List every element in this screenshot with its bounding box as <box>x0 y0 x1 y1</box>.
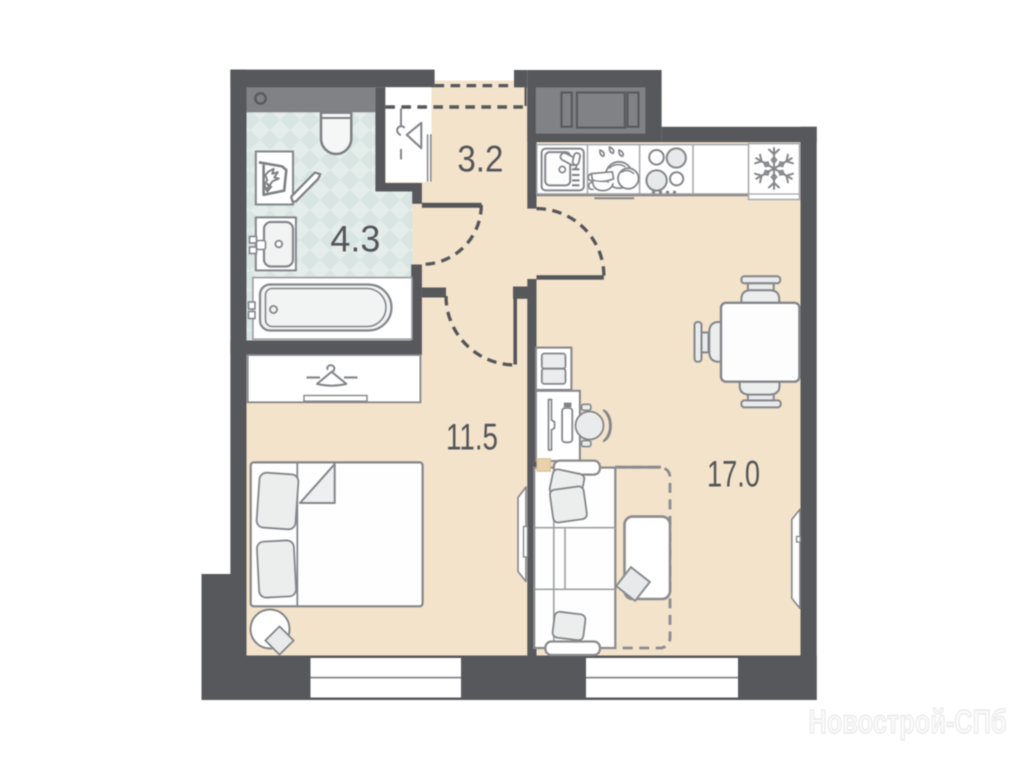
svg-text:Новострой-СПб: Новострой-СПб <box>809 703 1007 740</box>
svg-text:3.2: 3.2 <box>457 139 503 180</box>
svg-text:4.3: 4.3 <box>330 219 380 260</box>
svg-text:17.0: 17.0 <box>707 454 760 495</box>
svg-text:11.5: 11.5 <box>446 417 498 458</box>
